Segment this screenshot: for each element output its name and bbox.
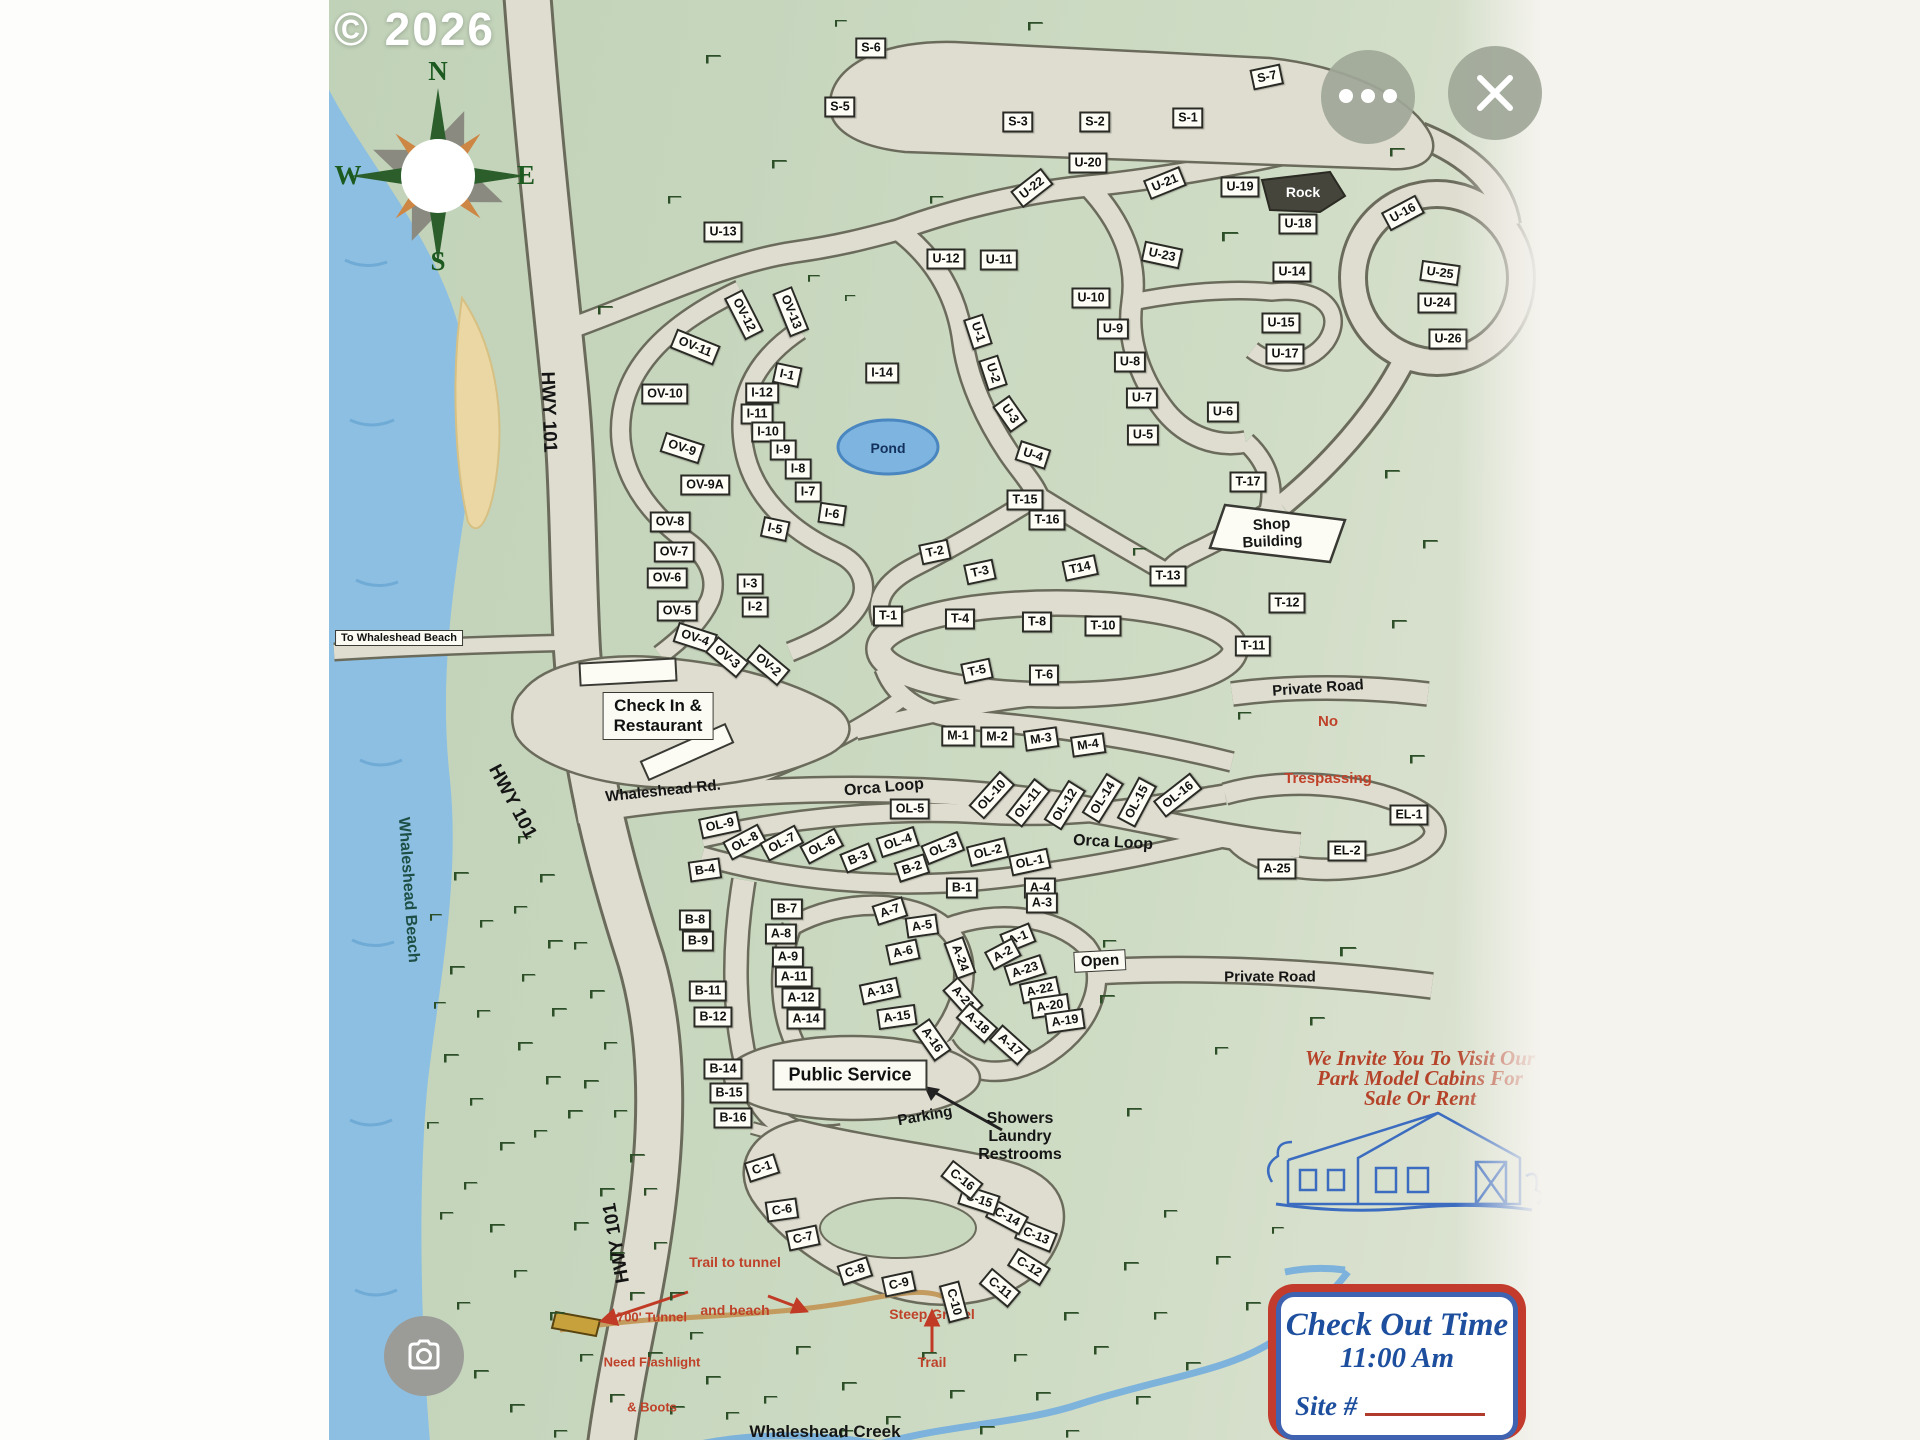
site-marker-t-15: T-15	[1006, 490, 1043, 511]
trail-line1: Trail to tunnel	[689, 1254, 781, 1270]
site-marker-i-6: I-6	[817, 502, 846, 526]
tunnel-note-label: 700' Tunnel Need Flashlight & Boots	[604, 1280, 701, 1440]
close-icon	[1474, 72, 1516, 114]
tree-icon	[1395, 714, 1426, 763]
site-marker-a-3: A-3	[1026, 893, 1058, 914]
hwy-101-label-north: HWY 101	[536, 371, 561, 453]
showers-line3: Restrooms	[978, 1146, 1062, 1164]
site-marker-a-12: A-12	[781, 988, 820, 1009]
tree-icon	[1377, 579, 1408, 628]
tree-icon	[520, 1093, 548, 1137]
site-marker-b-9: B-9	[682, 931, 714, 952]
tree-icon	[1140, 1275, 1168, 1319]
c-loop-island	[820, 1198, 976, 1258]
tree-icon	[757, 119, 788, 168]
site-marker-a-8: A-8	[765, 924, 797, 945]
check-in-line2: Restaurant	[614, 716, 703, 736]
tree-icon	[466, 883, 494, 927]
page-margin-left	[0, 0, 329, 1440]
site-marker-t-13: T-13	[1149, 566, 1186, 587]
tree-icon	[525, 833, 556, 882]
site-marker-b-4: B-4	[688, 857, 723, 882]
to-whaleshead-beach-sign: To Whaleshead Beach	[335, 630, 463, 646]
copyright-watermark: © 2026	[334, 2, 495, 56]
shop-line2: Building	[1242, 531, 1303, 551]
site-marker-u-18: U-18	[1278, 214, 1317, 235]
site-marker-ov-7: OV-7	[654, 542, 695, 563]
tree-icon	[443, 1265, 471, 1309]
site-marker-u-11: U-11	[980, 250, 1018, 271]
tree-icon	[535, 1271, 566, 1320]
site-marker-i-14: I-14	[865, 363, 899, 384]
check-out-title: Check Out Time	[1281, 1307, 1513, 1344]
tree-icon	[1121, 1355, 1152, 1404]
site-marker-ov-9a: OV-9A	[680, 475, 730, 496]
site-marker-s-3: S-3	[1002, 112, 1033, 133]
site-marker-u-6: U-6	[1207, 402, 1239, 423]
site-marker-u-20: U-20	[1068, 153, 1107, 174]
no-trespassing-label: No Trespassing	[1284, 674, 1372, 826]
site-marker-t-16: T-16	[1028, 510, 1065, 531]
site-marker-a-9: A-9	[772, 947, 804, 968]
tree-icon	[559, 1181, 590, 1230]
showers-laundry-restrooms-label: Showers Laundry Restrooms	[978, 1110, 1062, 1164]
tree-icon	[1150, 1173, 1178, 1217]
site-marker-u-8: U-8	[1114, 352, 1146, 373]
site-marker-u-15: U-15	[1261, 313, 1300, 334]
tree-icon	[569, 1039, 600, 1088]
site-marker-u-13: U-13	[703, 222, 742, 243]
tree-icon	[575, 949, 606, 998]
site-marker-s-5: S-5	[824, 97, 855, 118]
tree-icon	[1049, 1271, 1080, 1320]
site-marker-s-1: S-1	[1172, 108, 1203, 129]
site-marker-u-14: U-14	[1272, 262, 1311, 283]
site-marker-ov-10: OV-10	[641, 384, 688, 405]
tree-icon	[823, 0, 847, 27]
site-marker-t-10: T-10	[1084, 616, 1121, 637]
whaleshead-creek-label: Whaleshead Creek	[749, 1422, 900, 1440]
public-service-sign: Public Service	[772, 1060, 927, 1091]
tree-icon	[503, 1001, 534, 1050]
tree-icon	[1408, 499, 1439, 548]
tree-icon	[508, 937, 536, 981]
showers-line2: Laundry	[978, 1128, 1062, 1146]
page-margin-right	[1548, 0, 1920, 1440]
close-button[interactable]	[1448, 46, 1542, 140]
tree-icon	[475, 1183, 506, 1232]
tree-icon	[450, 1145, 478, 1189]
tree-icon	[426, 1175, 454, 1219]
site-marker-s-6: S-6	[855, 38, 886, 59]
site-marker-ol-5: OL-5	[890, 799, 930, 820]
more-options-button[interactable]	[1321, 50, 1415, 144]
tree-icon	[531, 1035, 562, 1084]
site-marker-m-2: M-2	[980, 727, 1014, 748]
site-marker-b-11: B-11	[689, 981, 727, 1002]
tree-icon	[1079, 1305, 1110, 1354]
tree-icon	[540, 1393, 568, 1437]
site-marker-u-24: U-24	[1417, 293, 1456, 314]
site-marker-s-2: S-2	[1079, 112, 1110, 133]
tree-icon	[456, 1061, 484, 1105]
tree-icon	[1201, 1215, 1232, 1264]
private-road-label-south: Private Road	[1224, 969, 1316, 986]
trail-to-tunnel-label: Trail to tunnel and beach	[689, 1222, 781, 1350]
site-marker-u-10: U-10	[1071, 288, 1110, 309]
tree-icon	[712, 1375, 740, 1419]
check-out-time: 11:00 Am	[1281, 1342, 1513, 1375]
site-marker-i-12: I-12	[745, 383, 779, 404]
tree-icon	[585, 1147, 616, 1196]
tree-icon	[654, 159, 682, 203]
site-marker-b-12: B-12	[693, 1007, 732, 1028]
tree-icon	[1013, 0, 1044, 31]
site-marker-u-12: U-12	[926, 249, 965, 270]
tree-icon	[834, 266, 855, 301]
tree-icon	[583, 265, 614, 314]
site-marker-u-19: U-19	[1220, 177, 1259, 198]
compass-e: E	[517, 160, 535, 190]
check-out-time-card-inner: Check Out Time 11:00 Am Site #	[1276, 1292, 1518, 1440]
map-right-fade	[1455, 0, 1550, 1440]
photo-viewer: { "watermark": "© 2026", "compass": {"n"…	[0, 0, 1920, 1440]
site-marker-t-8: T-8	[1022, 612, 1052, 633]
site-marker-u-17: U-17	[1265, 344, 1304, 365]
tree-icon	[600, 1073, 628, 1117]
tree-icon	[1201, 1010, 1229, 1054]
site-marker-b-1: B-1	[946, 878, 978, 899]
compass-s: S	[430, 246, 445, 276]
site-marker-ov-8: OV-8	[650, 512, 691, 533]
site-marker-b-14: B-14	[703, 1059, 742, 1080]
site-marker-t-6: T-6	[1029, 665, 1059, 686]
tree-icon	[495, 1363, 526, 1412]
site-marker-b-16: B-16	[713, 1108, 752, 1129]
tree-icon	[916, 159, 944, 203]
site-marker-b-8: B-8	[679, 910, 711, 931]
pond-label: Pond	[871, 440, 906, 456]
beach-sand	[455, 298, 499, 528]
site-marker-t-1: T-1	[873, 606, 903, 627]
tree-icon	[560, 905, 588, 949]
tree-icon	[1323, 902, 1357, 956]
site-marker-c-6: C-6	[765, 1197, 800, 1222]
tree-icon	[691, 14, 722, 63]
tree-icon	[1109, 1221, 1140, 1270]
steep-line2: Trail	[889, 1354, 975, 1370]
site-marker-b-7: B-7	[771, 899, 803, 920]
site-number-label: Site #	[1295, 1391, 1357, 1422]
tree-icon	[1231, 1261, 1262, 1310]
site-marker-t-11: T-11	[1235, 636, 1271, 657]
site-marker-a-11: A-11	[775, 967, 813, 988]
tree-icon	[533, 899, 564, 948]
tree-icon	[1052, 1393, 1080, 1437]
site-marker-a-25: A-25	[1257, 859, 1296, 880]
tree-icon	[500, 1233, 528, 1277]
tree-icon	[1260, 1194, 1284, 1233]
ellipsis-icon	[1335, 89, 1401, 106]
site-marker-el-2: EL-2	[1327, 841, 1366, 862]
open-sign: Open	[1073, 949, 1126, 973]
site-marker-u-5: U-5	[1127, 425, 1159, 446]
tree-icon	[1171, 1321, 1202, 1370]
site-marker-i-7: I-7	[795, 482, 822, 503]
tunnel-line2: Need Flashlight	[604, 1355, 701, 1370]
site-marker-ov-5: OV-5	[657, 601, 698, 622]
compass-w: W	[335, 160, 362, 190]
image-search-button[interactable]	[384, 1316, 464, 1396]
site-marker-b-15: B-15	[709, 1083, 748, 1104]
tree-icon	[827, 1341, 858, 1390]
ocean-water	[328, 88, 472, 1440]
site-marker-el-1: EL-1	[1389, 805, 1428, 826]
trail-line2: and beach	[689, 1302, 781, 1318]
site-marker-u-9: U-9	[1097, 319, 1129, 340]
site-marker-t-12: T-12	[1268, 593, 1305, 614]
compass-n: N	[428, 56, 448, 86]
tree-icon	[485, 1101, 516, 1150]
site-marker-t-4: T-4	[945, 609, 975, 630]
shop-building-label: Shop Building	[1241, 514, 1303, 551]
tree-icon	[1370, 429, 1401, 478]
tree-icon	[1000, 1317, 1028, 1361]
site-marker-a-14: A-14	[786, 1009, 825, 1030]
camera-icon	[404, 1336, 444, 1376]
site-marker-i-3: I-3	[737, 574, 764, 595]
tree-icon	[500, 869, 528, 913]
site-marker-t-17: T-17	[1229, 472, 1266, 493]
site-marker-i-2: I-2	[742, 597, 769, 618]
check-in-line1: Check In &	[614, 696, 703, 716]
site-marker-a-5: A-5	[905, 913, 940, 938]
site-marker-m-1: M-1	[941, 726, 975, 747]
tree-icon	[1112, 1067, 1143, 1116]
tunnel-line3: & Boots	[604, 1400, 701, 1415]
site-marker-i-8: I-8	[785, 459, 812, 480]
site-marker-ov-6: OV-6	[647, 568, 688, 589]
tree-icon	[1021, 1351, 1052, 1400]
site-number-blank	[1365, 1413, 1485, 1416]
site-marker-u-7: U-7	[1126, 388, 1158, 409]
no-trespassing-line2: Trespassing	[1284, 769, 1372, 788]
site-marker-i-9: I-9	[770, 440, 797, 461]
check-in-restaurant-sign: Check In & Restaurant	[603, 692, 714, 740]
tree-icon	[750, 1359, 778, 1403]
tree-icon	[537, 967, 568, 1016]
no-trespassing-line1: No	[1284, 712, 1372, 731]
tunnel-line1: 700' Tunnel	[604, 1310, 701, 1325]
check-out-time-card: Check Out Time 11:00 Am Site #	[1268, 1284, 1526, 1440]
tree-icon	[463, 973, 491, 1017]
tree-icon	[590, 1005, 618, 1049]
rock-label: Rock	[1286, 184, 1320, 200]
showers-line1: Showers	[978, 1110, 1062, 1128]
